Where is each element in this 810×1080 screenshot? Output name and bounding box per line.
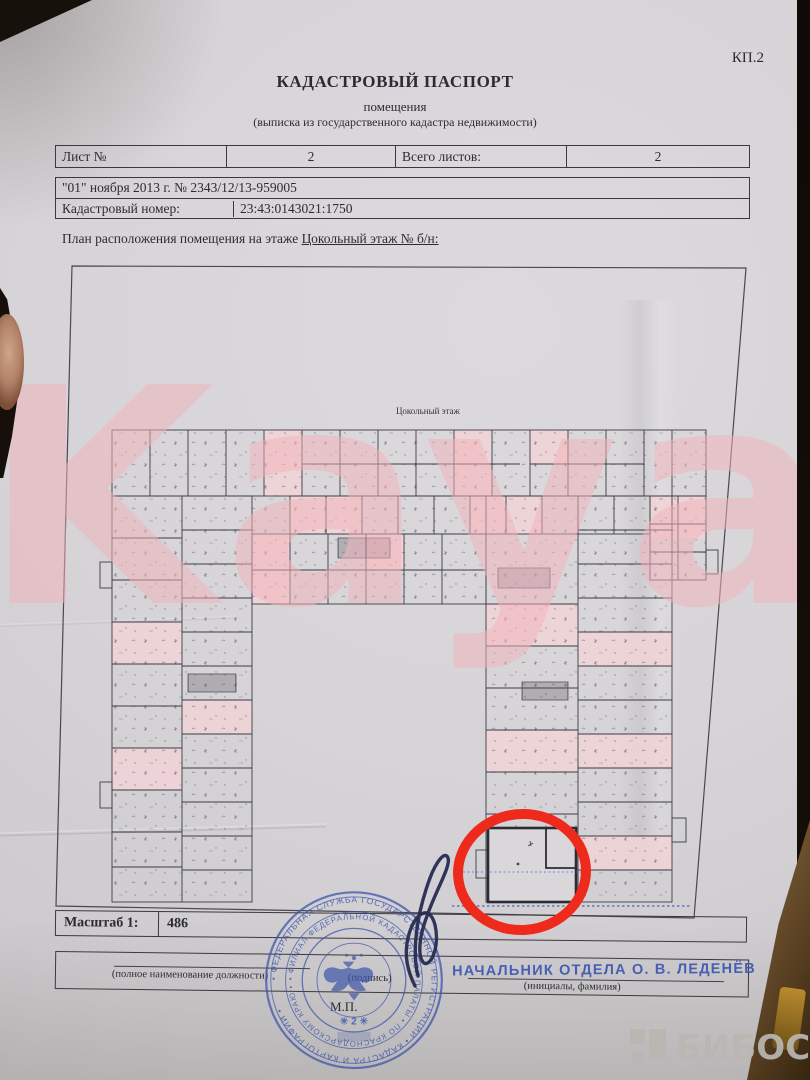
scale-label: Масштаб 1: xyxy=(56,915,158,932)
stamp-number: ✳ 2 ✳ xyxy=(340,1017,369,1028)
sheet-value: 2 xyxy=(226,146,395,167)
plan-heading-floor: Цокольный этаж № б/н: xyxy=(302,231,439,246)
building-outline xyxy=(100,430,718,906)
cadastral-number-row: Кадастровый номер: 23:43:0143021:1750 xyxy=(56,199,749,218)
plan-heading: План расположения помещения на этаже Цок… xyxy=(62,231,439,247)
document-title: КАДАСТРОВЫЙ ПАСПОРТ xyxy=(0,72,790,92)
date-and-number: "01" ноября 2013 г. № 2343/12/13-959005 xyxy=(56,178,749,199)
total-sheets-value: 2 xyxy=(566,146,749,167)
photo-of-document: КП.2 КАДАСТРОВЫЙ ПАСПОРТ помещения (выпи… xyxy=(0,0,810,1080)
biboss-logo-icon xyxy=(630,1029,668,1067)
plan-caption: Цокольный этаж xyxy=(396,406,461,416)
plan-heading-intro: План расположения помещения на этаже xyxy=(62,231,302,246)
approver-stamped-name: НАЧАЛЬНИК ОТДЕЛА О. В. ЛЕДЕНЁВ xyxy=(452,960,802,979)
red-circle-annotation xyxy=(444,800,600,948)
total-sheets-label: Всего листов: xyxy=(395,146,566,167)
floor-plan: Цокольный этаж xyxy=(50,262,750,922)
document-info-table: "01" ноября 2013 г. № 2343/12/13-959005 … xyxy=(55,177,750,219)
room-annotations xyxy=(112,430,706,902)
biboss-logo-text: БИБОСС xyxy=(676,1028,810,1068)
cadastral-number-value: 23:43:0143021:1750 xyxy=(233,201,749,217)
position-label: (полное наименование должности) xyxy=(112,969,268,982)
sheet-label: Лист № xyxy=(56,146,226,167)
stamp-small-digits xyxy=(337,1032,370,1041)
sheet-number-table: Лист № 2 Всего листов: 2 xyxy=(55,145,750,168)
form-code: КП.2 xyxy=(732,50,764,67)
document-subtitle: помещения xyxy=(0,99,790,115)
cadastral-number-label: Кадастровый номер: xyxy=(56,201,233,217)
scale-value: 486 xyxy=(158,912,196,936)
initials-label: (инициалы, фамилия) xyxy=(524,981,621,993)
biboss-logo: БИБОСС xyxy=(630,1028,810,1068)
finger-holding-paper xyxy=(0,288,40,478)
finger xyxy=(0,314,24,410)
document-note: (выписка из государственного кадастра не… xyxy=(0,115,790,130)
